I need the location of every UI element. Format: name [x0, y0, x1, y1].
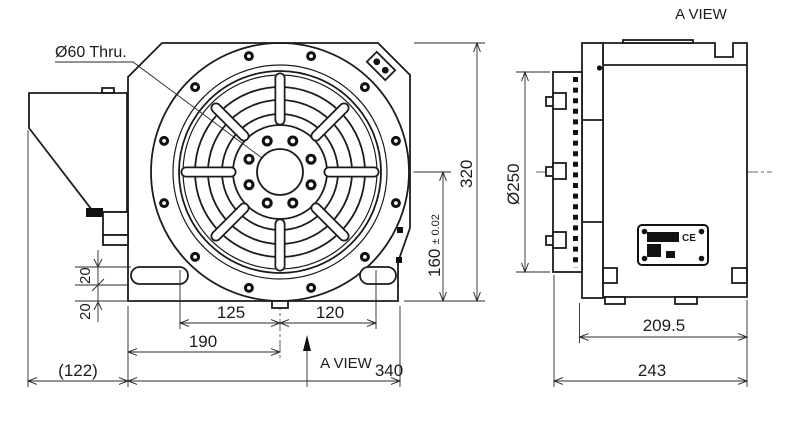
dim-243: 243: [638, 361, 666, 380]
connector-block: [86, 208, 103, 217]
dim-125: 125: [217, 303, 245, 322]
a-view-direction: A VIEW: [303, 335, 373, 387]
top-strip: [623, 40, 693, 43]
flange-column: [582, 43, 603, 298]
base-slot-right: [360, 267, 396, 284]
flange-screw: [597, 65, 602, 70]
ce-mark: CE: [682, 233, 696, 244]
dim-120: 120: [316, 303, 344, 322]
dim-20-upper: 20: [77, 267, 94, 284]
motor-housing: [29, 93, 127, 212]
a-view-front-label: A VIEW: [320, 355, 373, 372]
a-view-top-label: A VIEW: [675, 6, 728, 23]
foot-right: [675, 297, 697, 304]
nameplate-logo: [647, 232, 679, 242]
dim-209-5: 209.5: [643, 316, 686, 335]
technical-drawing-page: Ø60 Thru.: [0, 0, 800, 427]
rotary-table-drawing: Ø60 Thru.: [0, 0, 800, 427]
dim-340: 340: [375, 361, 403, 380]
dim-122: (122): [58, 361, 98, 380]
dim-20-lower: 20: [77, 303, 94, 320]
side-screw-upper: [397, 227, 403, 233]
housing-step-lower: [103, 235, 128, 245]
foot-left: [605, 297, 625, 304]
dim-190: 190: [189, 332, 217, 351]
housing-top-plug: [102, 88, 114, 93]
bore-callout-label: Ø60 Thru.: [55, 44, 127, 61]
nameplate: CE: [638, 225, 708, 265]
side-view: A VIEW: [536, 6, 772, 304]
slot-step-dims: 20 20: [77, 250, 104, 322]
side-screw-lower: [396, 257, 402, 263]
dim-250: Ø250: [504, 163, 523, 205]
base-slot-left: [131, 267, 188, 284]
housing-step-upper: [103, 212, 128, 235]
base-key-tab: [272, 301, 288, 308]
dim-320: 320: [457, 160, 476, 188]
dim-160: 160± 0.02: [425, 214, 444, 277]
